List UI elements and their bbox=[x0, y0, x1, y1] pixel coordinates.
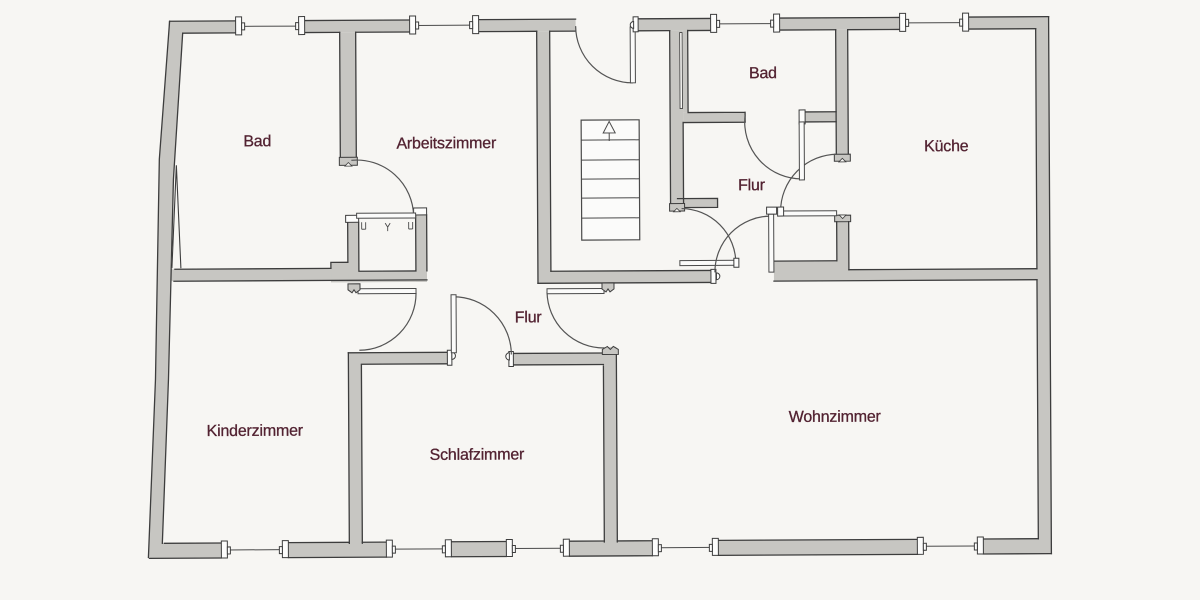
svg-text:Bad: Bad bbox=[749, 65, 777, 82]
svg-text:Bad: Bad bbox=[243, 133, 271, 150]
svg-text:Flur: Flur bbox=[738, 177, 766, 194]
svg-text:Arbeitszimmer: Arbeitszimmer bbox=[396, 135, 497, 153]
svg-text:Wohnzimmer: Wohnzimmer bbox=[789, 409, 882, 426]
svg-text:Schlafzimmer: Schlafzimmer bbox=[430, 446, 525, 463]
svg-text:Küche: Küche bbox=[924, 138, 969, 155]
svg-text:Kinderzimmer: Kinderzimmer bbox=[207, 423, 304, 441]
svg-text:Flur: Flur bbox=[515, 309, 543, 326]
